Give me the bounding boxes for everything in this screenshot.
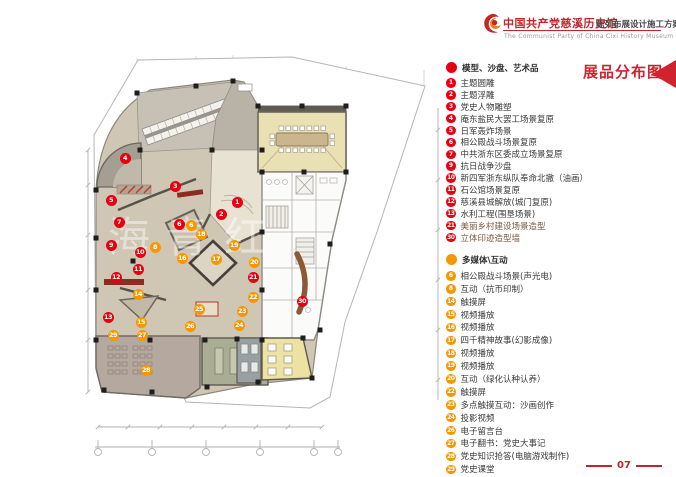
legend-item-4: 4庵东盐民大罢工场景复原 (446, 113, 672, 125)
plan-marker-red-5: 5 (106, 195, 117, 206)
legend-item-14: 14触摸屏 (446, 295, 672, 308)
plan-marker-orange-17: 17 (211, 254, 222, 265)
legend-item-number: 6 (446, 138, 456, 148)
legend-header-dot-icon (446, 62, 457, 73)
legend-item-label: 立体印迹造型墙 (461, 232, 521, 244)
plan-marker-red-7: 7 (114, 217, 125, 228)
plan-marker-orange-8: 8 (150, 242, 161, 253)
legend-item-number: 30 (446, 233, 456, 243)
legend-item-number: 26 (446, 426, 456, 436)
header-rule (503, 30, 661, 31)
page-number-dash-left (586, 465, 612, 467)
plan-marker-orange-28: 28 (141, 365, 152, 376)
plan-marker-red-21: 21 (248, 272, 259, 283)
plan-marker-red-9: 9 (106, 240, 117, 251)
legend-item-8: 8互动（抗币印制） (446, 282, 672, 295)
legend-item-24: 24投影视频 (446, 411, 672, 424)
legend-item-11: 11石公馆场景复原 (446, 184, 672, 196)
plan-marker-red-10: 10 (135, 247, 146, 258)
entry-door (238, 84, 252, 91)
legend-item-label: 电子翻书：党史大事记 (461, 437, 546, 449)
plan-marker-red-11: 11 (133, 264, 144, 275)
legend-item-26: 26电子留言台 (446, 424, 672, 437)
legend-item-number: 21 (446, 221, 456, 231)
legend-header-dot-icon (446, 254, 457, 265)
legend-item-number: 17 (446, 336, 456, 346)
plan-marker-orange-20: 20 (249, 257, 260, 268)
legend-item-number: 3 (446, 102, 456, 112)
legend-item-18: 18视频播放 (446, 347, 672, 360)
legend-item-label: 相公殿战斗场景(声光电) (461, 270, 553, 282)
legend-item-number: 18 (446, 349, 456, 359)
legend-item-3: 3党史人物雕塑 (446, 101, 672, 113)
conference-table (276, 133, 328, 146)
legend-item-label: 慈溪县城解放(城门复原) (461, 196, 553, 208)
legend-item-number: 24 (446, 413, 456, 423)
plan-marker-orange-24: 24 (234, 320, 245, 331)
legend-item-label: 水利工程(围垦场景) (461, 208, 536, 220)
legend-item-label: 美丽乡村建设场景造型 (461, 220, 546, 232)
page-number-value: 07 (617, 460, 631, 471)
legend-item-label: 视频播放 (461, 309, 495, 321)
legend-item-number: 23 (446, 400, 456, 410)
legend-item-label: 互动（绿化认种认养） (461, 373, 546, 385)
legend-item-label: 互动（抗币印制） (461, 283, 529, 295)
legend-item-23: 23多点触摸互动：沙画创作 (446, 398, 672, 411)
legend-header-label: 模型、沙盘、艺术品 (462, 62, 539, 74)
plan-marker-red-4: 4 (120, 153, 131, 164)
legend-item-label: 庵东盐民大罢工场景复原 (461, 113, 555, 125)
legend-item-number: 22 (446, 387, 456, 397)
legend-item-label: 触摸屏 (461, 386, 487, 398)
plan-marker-orange-22: 22 (248, 292, 259, 303)
plan-marker-orange-6: 6 (186, 220, 197, 231)
legend-item-label: 日军轰炸场景 (461, 125, 512, 137)
legend-item-21: 21美丽乡村建设场景造型 (446, 220, 672, 232)
plan-marker-orange-16: 16 (177, 253, 188, 264)
legend-section-multimedia: 多媒体\互动6相公殿战斗场景(声光电)8互动（抗币印制）14触摸屏15视频播放1… (446, 252, 672, 475)
legend-item-5: 5日军轰炸场景 (446, 125, 672, 137)
legend-item-13: 13水利工程(围垦场景) (446, 208, 672, 220)
legend-item-label: 视频播放 (461, 347, 495, 359)
legend-item-6: 6相公殿战斗场景复原 (446, 136, 672, 148)
plan-marker-red-6: 6 (174, 219, 185, 230)
legend-item-15: 15视频播放 (446, 308, 672, 321)
legend-sections: 模型、沙盘、艺术品1主题圆雕2主题浮雕3党史人物雕塑4庵东盐民大罢工场景复原5日… (446, 60, 672, 476)
plan-marker-orange-23: 23 (237, 306, 248, 317)
plan-marker-red-30: 30 (297, 296, 308, 307)
legend-item-27: 27电子翻书：党史大事记 (446, 437, 672, 450)
legend-item-2: 2主题浮雕 (446, 89, 672, 101)
legend-item-number: 19 (446, 361, 456, 371)
legend-item-number: 13 (446, 209, 456, 219)
legend-item-number: 2 (446, 90, 456, 100)
legend-item-number: 16 (446, 323, 456, 333)
legend-item-label: 新四军浙东纵队奉命北撤（油画） (461, 172, 589, 184)
legend-item-label: 四千精神故事(幻影成像) (461, 334, 553, 346)
legend-item-label: 党史课堂 (461, 463, 495, 475)
legend-item-label: 党史知识抢答(电脑游戏制作) (461, 450, 570, 462)
legend-section-header: 多媒体\互动 (446, 252, 672, 267)
plan-marker-red-1: 1 (232, 197, 243, 208)
legend-item-label: 石公馆场景复原 (461, 184, 521, 196)
plan-marker-orange-14: 14 (133, 289, 144, 300)
legend-item-number: 5 (446, 126, 456, 136)
legend-item-label: 投影视频 (461, 412, 495, 424)
legend-item-1: 1主题圆雕 (446, 77, 672, 89)
legend-item-label: 电子留言台 (461, 425, 504, 437)
plan-marker-red-12: 12 (111, 272, 122, 283)
plan-marker-red-13: 13 (103, 312, 114, 323)
legend-item-label: 抗日战争沙盘 (461, 160, 512, 172)
legend-item-30: 30立体印迹造型墙 (446, 232, 672, 244)
plan-marker-orange-25: 25 (194, 304, 205, 315)
legend-item-12: 12慈溪县城解放(城门复原) (446, 196, 672, 208)
legend-item-17: 17四千精神故事(幻影成像) (446, 334, 672, 347)
legend-item-number: 15 (446, 310, 456, 320)
party-logo-icon (481, 13, 503, 35)
legend-item-16: 16视频播放 (446, 321, 672, 334)
plan-marker-orange-26: 26 (185, 321, 196, 332)
legend-item-22: 22触摸屏 (446, 385, 672, 398)
legend-item-number: 6 (446, 271, 456, 281)
legend-item-7: 7中共浙东区委成立场景复原 (446, 148, 672, 160)
plan-marker-orange-19: 19 (229, 240, 240, 251)
legend-section-header: 模型、沙盘、艺术品 (446, 60, 672, 75)
legend-item-label: 主题圆雕 (461, 77, 495, 89)
legend-item-6: 6相公殿战斗场景(声光电) (446, 269, 672, 282)
legend-header-label: 多媒体\互动 (462, 254, 508, 266)
legend-item-number: 29 (446, 465, 456, 475)
legend-item-label: 触摸屏 (461, 296, 487, 308)
plan-subtitle: 陈列布展设计施工方案 (596, 18, 676, 30)
plan-marker-orange-15: 15 (136, 317, 147, 328)
legend-item-number: 1 (446, 78, 456, 88)
plan-marker-red-3: 3 (170, 181, 181, 192)
legend-item-number: 9 (446, 161, 456, 171)
legend-item-20: 20互动（绿化认种认养） (446, 373, 672, 386)
legend-item-number: 27 (446, 439, 456, 449)
legend-item-label: 多点触摸互动：沙画创作 (461, 399, 555, 411)
plan-marker-orange-18: 18 (196, 229, 207, 240)
legend-item-number: 20 (446, 374, 456, 384)
legend-item-label: 视频播放 (461, 360, 495, 372)
museum-title-english: The Communist Party of China Cixi Histor… (504, 33, 673, 40)
page-number: 07 (586, 460, 662, 471)
legend-item-number: 7 (446, 150, 456, 160)
plan-marker-orange-27: 27 (137, 330, 148, 341)
legend-item-label: 视频播放 (461, 321, 495, 333)
legend-item-label: 中共浙东区委成立场景复原 (461, 148, 563, 160)
legend-item-number: 11 (446, 185, 456, 195)
legend-item-number: 8 (446, 284, 456, 294)
legend-item-9: 9抗日战争沙盘 (446, 160, 672, 172)
legend-section-models: 模型、沙盘、艺术品1主题圆雕2主题浮雕3党史人物雕塑4庵东盐民大罢工场景复原5日… (446, 60, 672, 243)
legend-item-number: 4 (446, 114, 456, 124)
legend-item-number: 12 (446, 197, 456, 207)
plan-marker-orange-29: 29 (108, 330, 119, 341)
elevator (296, 176, 313, 194)
plan-marker-red-2: 2 (216, 209, 227, 220)
legend-item-label: 主题浮雕 (461, 89, 495, 101)
legend-item-number: 10 (446, 173, 456, 183)
page-number-dash-right (636, 465, 662, 467)
design-sheet: { "header": { "title": "中国共产党慈溪历史馆", "su… (0, 0, 676, 477)
legend-item-label: 相公殿战斗场景复原 (461, 136, 538, 148)
legend-item-10: 10新四军浙东纵队奉命北撤（油画） (446, 172, 672, 184)
legend-item-number: 28 (446, 452, 456, 462)
legend-item-number: 14 (446, 297, 456, 307)
legend-item-19: 19视频播放 (446, 360, 672, 373)
legend-item-label: 党史人物雕塑 (461, 101, 512, 113)
